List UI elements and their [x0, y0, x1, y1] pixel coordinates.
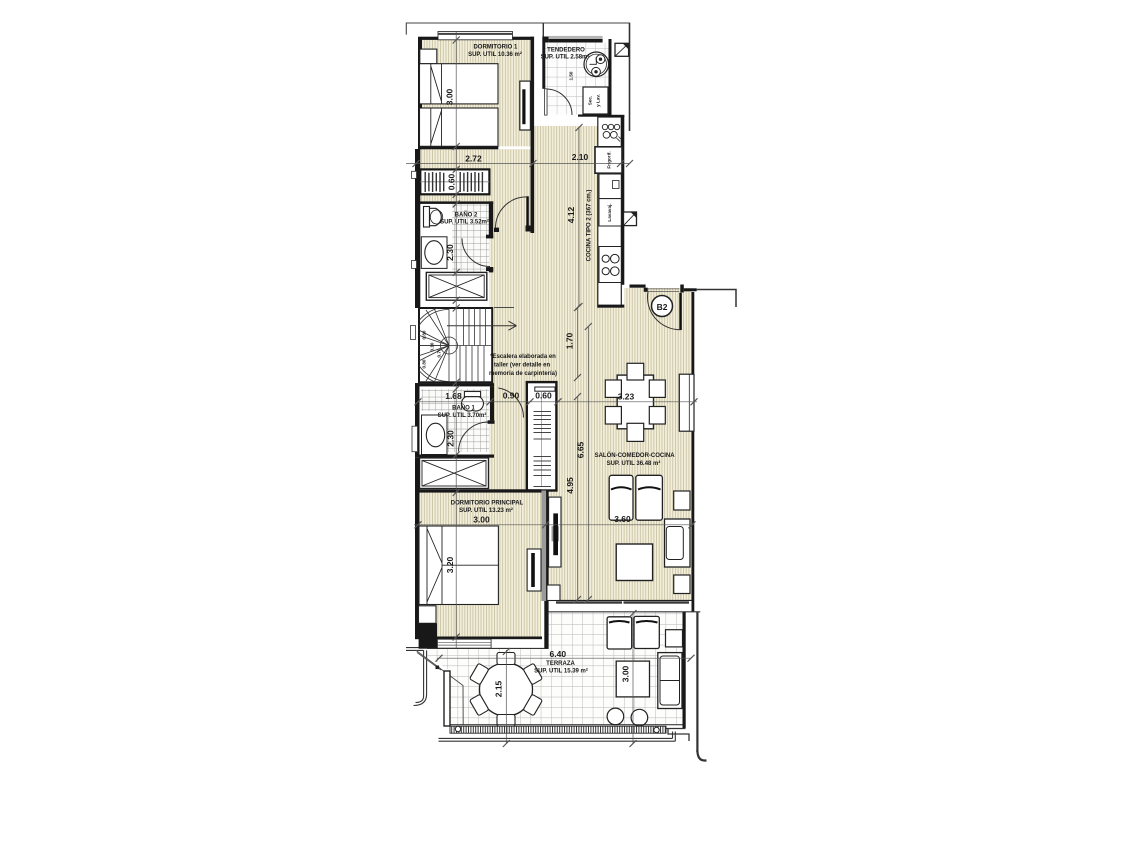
svg-text:1.70: 1.70	[565, 332, 575, 349]
svg-text:1.50: 1.50	[569, 71, 574, 80]
svg-text:TERRAZA: TERRAZA	[546, 661, 575, 667]
svg-text:COCINA TIPO 2 (367 cm.): COCINA TIPO 2 (367 cm.)	[587, 190, 593, 262]
svg-text:SUP. UTIL 3.70m²: SUP. UTIL 3.70m²	[438, 412, 487, 419]
svg-text:0.60: 0.60	[535, 391, 552, 401]
svg-text:*Escalera elaborada en: *Escalera elaborada en	[490, 354, 556, 360]
svg-text:3.23: 3.23	[618, 392, 635, 402]
svg-text:DORMITORIO 1: DORMITORIO 1	[473, 45, 518, 51]
svg-text:6.40: 6.40	[550, 649, 567, 659]
svg-text:0.70: 0.70	[437, 348, 442, 357]
svg-text:SUP. UTIL 36.48 m²: SUP. UTIL 36.48 m²	[607, 460, 661, 467]
svg-text:TENDEDERO: TENDEDERO	[547, 48, 585, 54]
svg-text:SUP. UTIL 3.52m²: SUP. UTIL 3.52m²	[440, 219, 489, 226]
svg-text:Sec.: Sec.	[588, 96, 593, 105]
svg-text:3.00: 3.00	[620, 665, 630, 682]
svg-text:B2: B2	[657, 302, 668, 312]
svg-text:2.15: 2.15	[494, 680, 504, 697]
svg-text:2.30: 2.30	[445, 244, 455, 261]
svg-text:DORMITORIO PRINCIPAL: DORMITORIO PRINCIPAL	[451, 501, 524, 507]
svg-text:3.00: 3.00	[473, 515, 490, 525]
svg-text:0.90: 0.90	[503, 391, 520, 401]
svg-text:4.95: 4.95	[565, 477, 575, 494]
svg-text:3.60: 3.60	[614, 514, 631, 524]
svg-text:taller (ver detalle en: taller (ver detalle en	[494, 363, 551, 369]
svg-text:SUP. UTIL 15.39 m²: SUP. UTIL 15.39 m²	[534, 668, 588, 675]
svg-text:SUP. UTIL 13.23 m²: SUP. UTIL 13.23 m²	[459, 507, 513, 514]
svg-text:0.80: 0.80	[422, 359, 427, 368]
svg-text:3.00: 3.00	[445, 88, 455, 105]
svg-text:Frigorif.: Frigorif.	[607, 151, 612, 168]
svg-text:SALÓN-COMEDOR-COCINA: SALÓN-COMEDOR-COCINA	[595, 451, 676, 459]
svg-text:2.30: 2.30	[445, 430, 455, 447]
svg-text:0.10: 0.10	[430, 342, 435, 351]
svg-text:SUP. UTIL 10.36 m²: SUP. UTIL 10.36 m²	[468, 51, 522, 58]
svg-text:6.65: 6.65	[575, 441, 585, 458]
svg-text:BAÑO 2: BAÑO 2	[455, 212, 478, 219]
svg-text:4.12: 4.12	[566, 206, 576, 223]
svg-text:SUP. UTIL 2.58m²: SUP. UTIL 2.58m²	[541, 54, 590, 61]
svg-text:y Lav.: y Lav.	[596, 94, 601, 107]
svg-text:memoria de carpintería): memoria de carpintería)	[489, 371, 557, 377]
svg-text:0.80: 0.80	[422, 330, 427, 339]
svg-text:2.10: 2.10	[572, 152, 589, 162]
svg-text:2.72: 2.72	[465, 154, 482, 164]
svg-text:BAÑO 1: BAÑO 1	[452, 405, 475, 412]
svg-text:Lavavaj.: Lavavaj.	[607, 203, 612, 221]
svg-text:3.20: 3.20	[445, 556, 455, 573]
svg-text:0.60: 0.60	[447, 173, 457, 190]
